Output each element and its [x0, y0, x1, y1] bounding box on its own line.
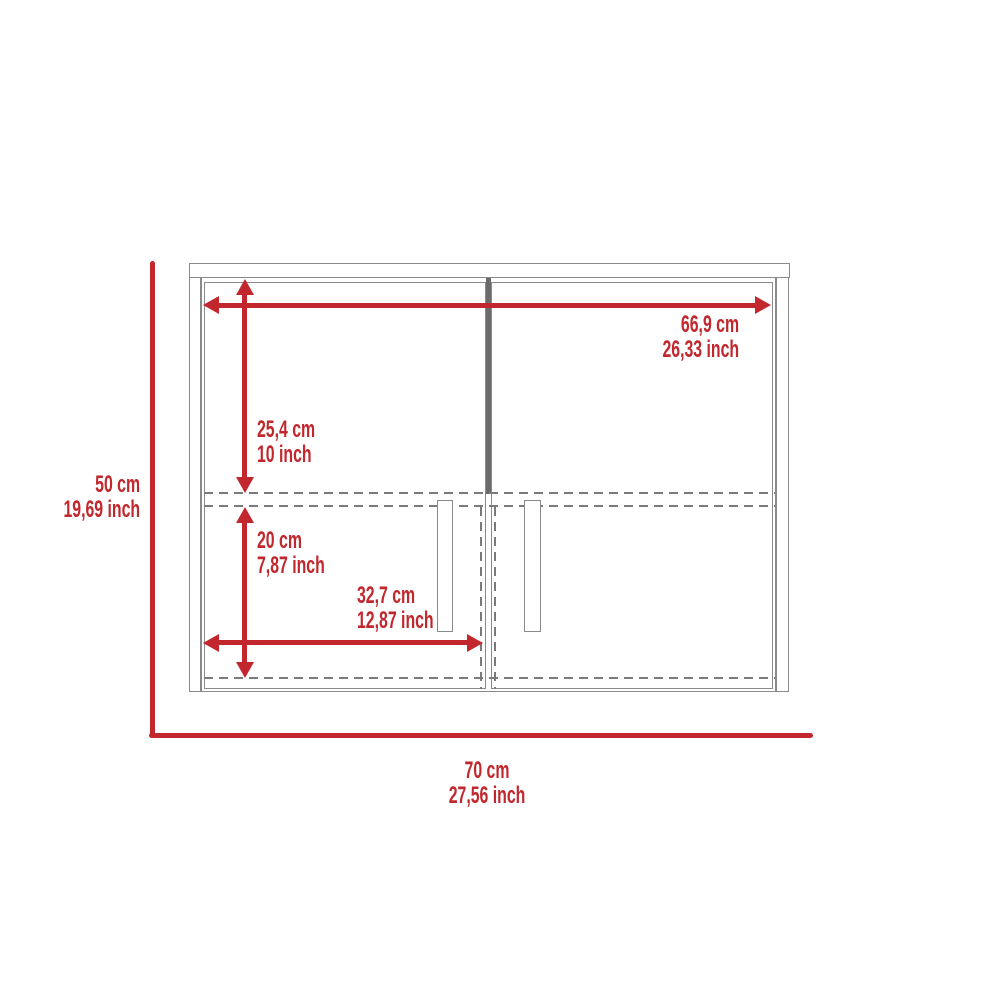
- label-inner-width: 66,9 cm 26,33 inch: [662, 312, 739, 362]
- arrowhead-down-icon: [236, 477, 254, 493]
- label-overall-height-inch: 19,69 inch: [63, 497, 140, 522]
- label-upper-height: 25,4 cm 10 inch: [257, 417, 315, 467]
- width-extension-line: [149, 733, 813, 738]
- arrow-inner-width: [217, 303, 757, 308]
- arrowhead-right-icon: [755, 296, 771, 314]
- shelf-dashed-line-lower: [204, 505, 775, 507]
- label-lower-height: 20 cm 7,87 inch: [257, 528, 325, 578]
- label-lower-height-inch: 7,87 inch: [257, 553, 325, 578]
- cabinet-top-board: [189, 263, 790, 278]
- bottom-dashed-line: [204, 677, 775, 679]
- cabinet-inner-wall-right: [775, 277, 777, 692]
- shelf-dashed-line-upper: [204, 492, 775, 494]
- center-divider: [486, 278, 491, 494]
- arrow-upper-height: [242, 293, 247, 479]
- arrowhead-up-icon: [236, 279, 254, 295]
- arrowhead-left-icon: [203, 296, 219, 314]
- height-extension-line: [150, 261, 155, 737]
- label-upper-height-inch: 10 inch: [257, 442, 315, 467]
- arrowhead-down-icon: [236, 662, 254, 678]
- arrow-door-width: [217, 640, 469, 645]
- label-door-width: 32,7 cm 12,87 inch: [357, 583, 434, 633]
- label-door-width-inch: 12,87 inch: [357, 608, 434, 633]
- cabinet-dimension-diagram: 66,9 cm 26,33 inch 25,4 cm 10 inch 20 cm…: [0, 0, 1000, 1000]
- door-handle-left: [437, 500, 453, 632]
- center-dashed-line-left: [480, 507, 482, 689]
- label-upper-height-cm: 25,4 cm: [257, 417, 315, 442]
- arrowhead-right-icon: [467, 634, 483, 652]
- label-inner-width-cm: 66,9 cm: [662, 312, 739, 337]
- label-overall-width-cm: 70 cm: [421, 758, 553, 783]
- label-overall-height: 50 cm 19,69 inch: [63, 472, 140, 522]
- label-overall-width-inch: 27,56 inch: [421, 783, 553, 808]
- arrowhead-left-icon: [203, 634, 219, 652]
- arrowhead-up-icon: [236, 507, 254, 523]
- label-inner-width-inch: 26,33 inch: [662, 337, 739, 362]
- cabinet-inner-wall-left: [200, 277, 202, 692]
- door-handle-right: [524, 500, 541, 632]
- label-overall-height-cm: 50 cm: [63, 472, 140, 497]
- label-door-width-cm: 32,7 cm: [357, 583, 434, 608]
- center-dashed-line-right: [494, 507, 496, 689]
- label-lower-height-cm: 20 cm: [257, 528, 325, 553]
- label-overall-width: 70 cm 27,56 inch: [421, 758, 553, 808]
